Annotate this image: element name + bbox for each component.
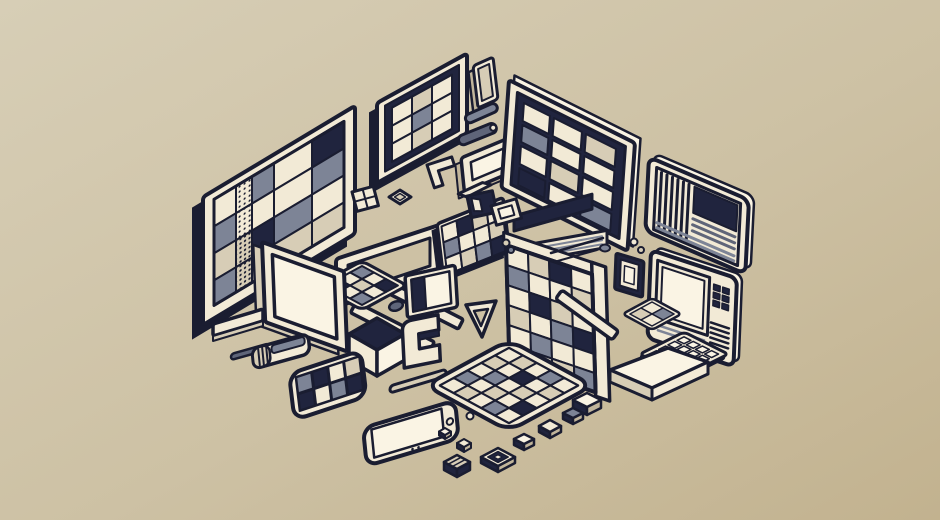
mini-window [352,186,378,211]
mini-frame [615,253,644,297]
mosaic-tile [722,295,729,303]
isometric-devices-illustration [0,0,940,520]
mosaic-tile [714,284,721,292]
keycap-4 [514,434,534,450]
mosaic-tile [713,300,720,308]
mini-monitor [405,265,458,318]
home-button [467,413,474,420]
mosaic-tile [723,287,730,295]
illustration-canvas [0,0,940,520]
phone-home-button [446,417,453,425]
keycap-5 [457,439,471,452]
keycap-2 [563,408,583,424]
mosaic-tile [713,292,720,300]
mosaic-tile [722,303,729,311]
keycap-6 [439,428,451,439]
